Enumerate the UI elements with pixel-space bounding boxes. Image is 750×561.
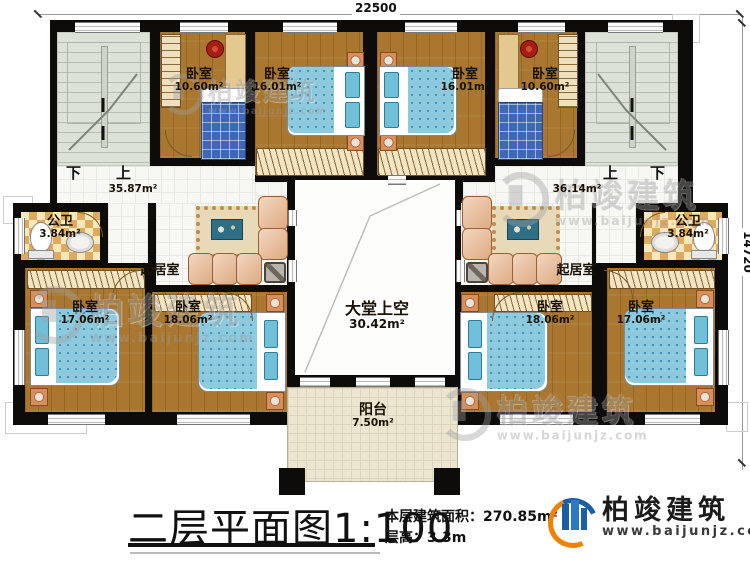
room-label: 起居室 [129,264,191,278]
room-label: 卧室17.06m² [52,301,118,327]
sofa-seat [258,228,288,260]
vestibule-right-tile [596,203,636,263]
window [283,22,337,33]
window [608,22,663,33]
room-label: 公卫3.84m² [655,215,721,241]
sofa-seat [236,253,262,285]
window [300,377,330,387]
chair [520,40,538,58]
bed-pillow [345,102,360,128]
room-label: 卧室18.06m² [517,301,583,327]
stair-break-line [57,32,150,166]
door-opening [388,175,406,185]
window [180,22,228,33]
floor-area-info: 本层建筑面积：270.85m² [385,506,558,526]
stair-right-area: 36.14m² [544,184,610,196]
nightstand [461,294,479,312]
coffee-table [507,219,539,240]
side-table [466,262,488,283]
railing-opening [456,260,465,282]
company-url: www.baijunjz.com [602,524,750,539]
nightstand [347,134,364,151]
sofa-seat [462,196,492,230]
hall-void-label: 大堂上空30.42m² [337,300,417,331]
balcony-column-left [279,468,305,495]
window [405,22,457,33]
company-logo: 柏竣建筑 www.baijunjz.com [548,494,750,542]
nightstand [266,294,284,312]
nightstand [461,392,479,410]
coffee-table [211,219,243,240]
stair-down-label: 下 [650,162,665,183]
room-label: 卧室16.01m² [244,68,310,94]
nightstand [380,134,397,151]
nightstand [30,388,48,406]
room-label: 卧室17.06m² [608,301,674,327]
window [518,22,565,33]
room-label: 卧室16.01m² [432,68,498,94]
nightstand [696,388,714,406]
railing-opening [288,260,297,282]
sofa-seat [258,196,288,230]
sofa-seat [212,253,238,285]
room-label: 公卫3.84m² [27,215,93,241]
company-logo-icon [548,494,594,542]
window [75,22,140,33]
top-dimension-label: 22500 [352,1,400,15]
watermark-url: www.baijunjz.com [497,429,649,443]
nightstand [696,290,714,308]
bed-pillow [264,320,278,348]
toilet-tank [691,250,717,259]
sofa-seat [462,228,492,260]
title-text: 二层平面图 [128,506,333,552]
window [500,414,573,425]
window [14,330,25,385]
bed-pillow [694,348,708,376]
room-label: 卧室10.60m² [512,68,578,94]
toilet-tank [28,250,54,259]
void-diagonal-line [295,180,455,375]
window [718,330,729,385]
stair-up-label: 上 [603,162,618,183]
window [48,414,105,425]
window [177,414,250,425]
chair [206,40,224,58]
frame-artifact [726,402,748,432]
stair-left-area: 35.87m² [100,184,166,196]
stair-break-line [585,32,678,166]
railing-opening [288,210,297,226]
balcony-column-right [434,468,460,495]
bed-pillow [345,72,360,98]
sofa-seat [512,253,538,285]
bed-pillow [35,316,49,344]
sofa-seat [488,253,514,285]
closet-top-left [256,148,364,176]
nightstand [30,290,48,308]
bed-pillow [468,352,482,380]
window [356,377,390,387]
bed-pillow [694,316,708,344]
single-bed [201,102,246,160]
closet-top-right [378,148,486,176]
vestibule-left-tile [108,203,148,263]
balcony-label: 阳台7.50m² [344,403,402,430]
single-bed [498,102,543,160]
side-table [264,262,286,283]
bed-pillow [384,72,399,98]
sofa-seat [188,253,214,285]
window [415,377,445,387]
company-name: 柏竣建筑 [602,497,750,524]
room-label: 起居室 [545,264,607,278]
room-label: 卧室10.60m² [166,68,232,94]
floor-height-info: 层高：3.3m [385,527,466,547]
nightstand [266,392,284,410]
window [14,218,25,254]
bed-pillow [264,352,278,380]
bed-pillow [35,348,49,376]
floor-plan-canvas: 22500 14720 [0,0,750,561]
bed-pillow [468,320,482,348]
stair-up-label: 上 [116,162,131,183]
right-dimension-label: 14720 [741,228,750,276]
bed-pillow [384,102,399,128]
window [645,414,700,425]
room-label: 卧室18.06m² [155,301,221,327]
stair-down-label: 下 [66,162,81,183]
